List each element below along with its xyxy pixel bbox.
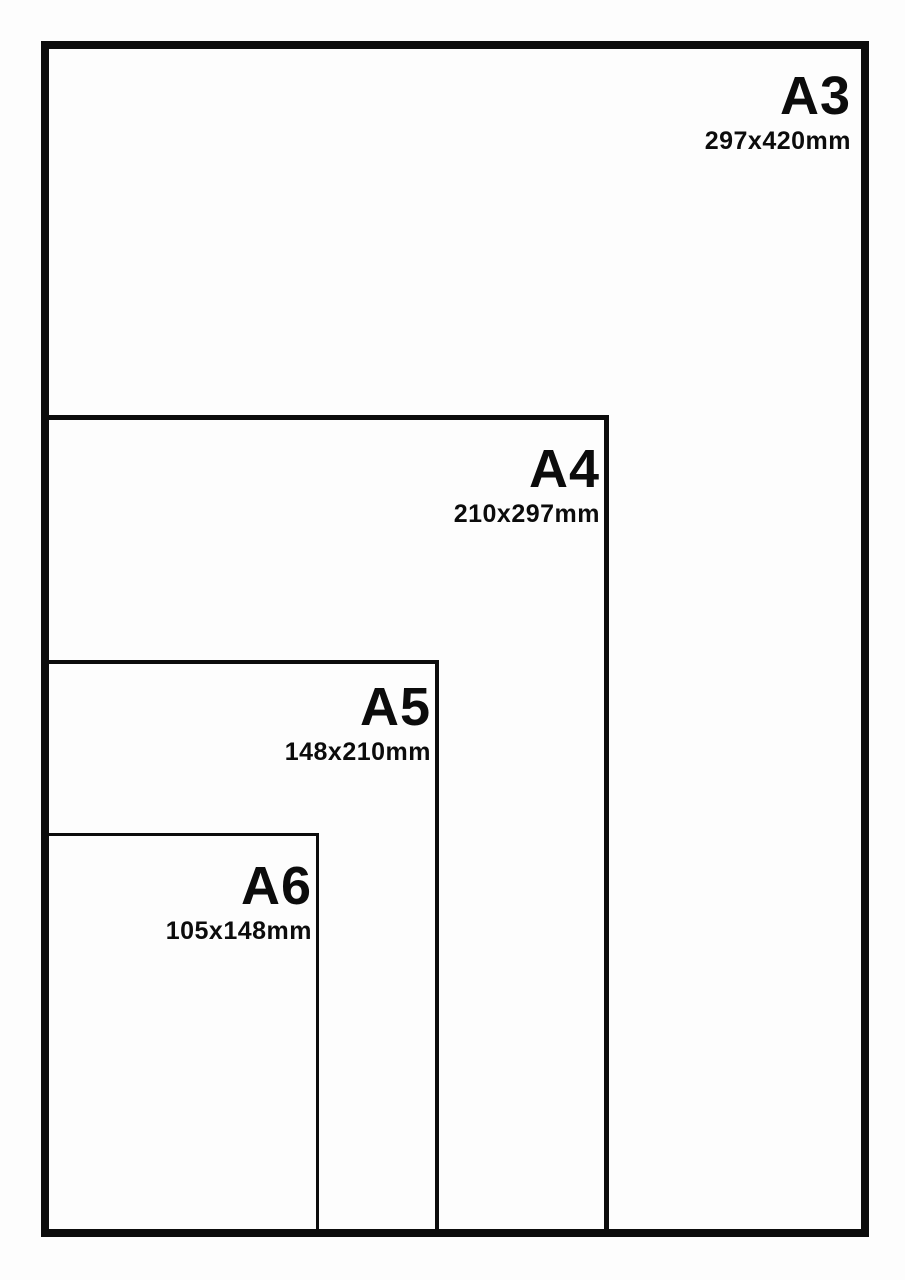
a6-dimensions-label: 105x148mm xyxy=(166,918,312,946)
a4-size-label: A4 xyxy=(529,440,600,498)
a6-label-block: A6 105x148mm xyxy=(166,857,312,946)
a3-dimensions-label: 297x420mm xyxy=(705,128,851,156)
a3-label-block: A3 297x420mm xyxy=(705,67,851,156)
a5-label-block: A5 148x210mm xyxy=(285,678,431,767)
paper-size-diagram: A3 297x420mm A4 210x297mm A5 148x210mm A… xyxy=(0,0,905,1280)
a5-dimensions-label: 148x210mm xyxy=(285,739,431,767)
a6-size-label: A6 xyxy=(241,857,312,915)
a4-dimensions-label: 210x297mm xyxy=(454,501,600,529)
a6-rectangle: A6 105x148mm xyxy=(49,833,319,1229)
a4-label-block: A4 210x297mm xyxy=(454,440,600,529)
a3-size-label: A3 xyxy=(780,67,851,125)
a5-size-label: A5 xyxy=(360,678,431,736)
